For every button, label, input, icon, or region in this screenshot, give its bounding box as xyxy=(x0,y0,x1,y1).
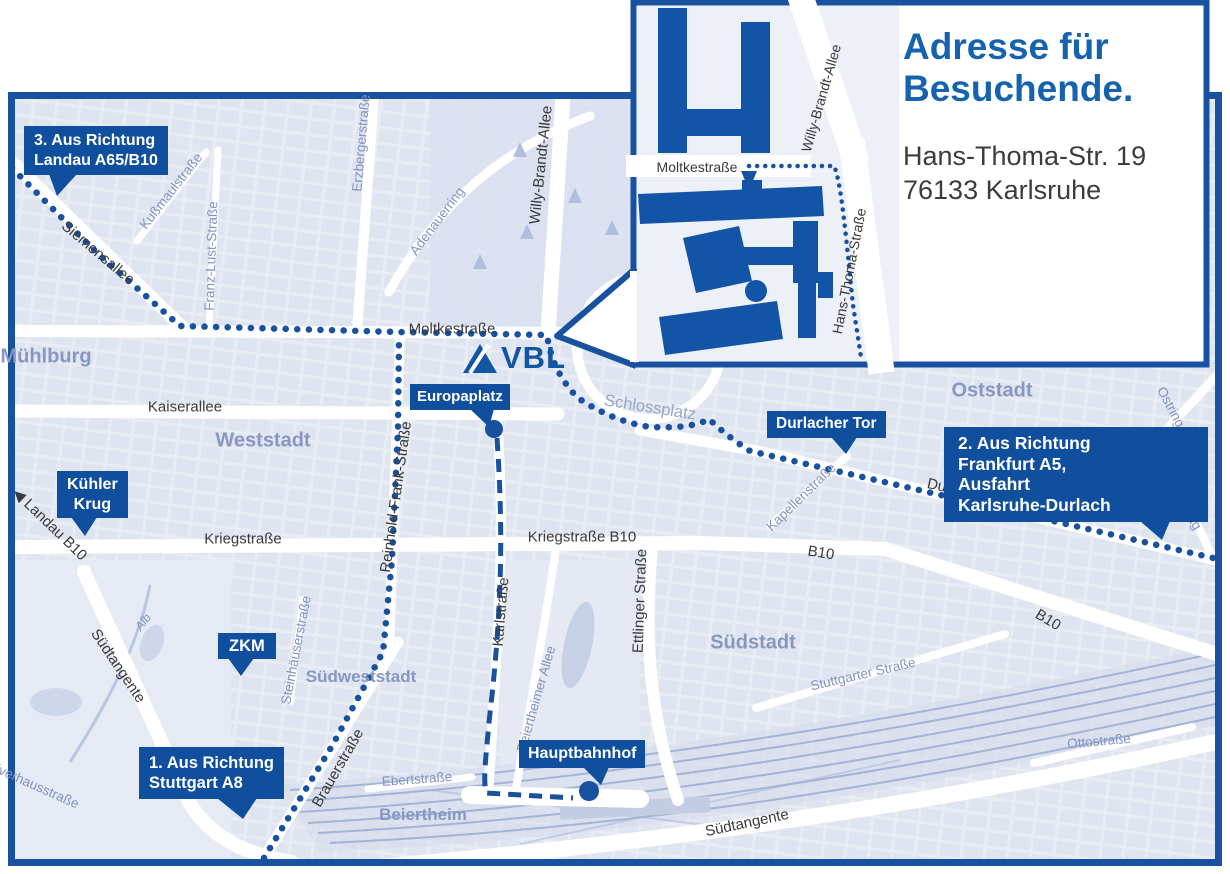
vbl-directions-map: SiemensalleeKußmaulstraßeFranz-Lust-Stra… xyxy=(0,0,1230,874)
callout-tail xyxy=(470,409,494,427)
callout-hauptbahnhof: Hauptbahnhof xyxy=(519,740,645,768)
callout-tail xyxy=(831,437,857,454)
vbl-logo-text: VBL xyxy=(501,340,566,376)
vbl-triangle-icon xyxy=(462,343,498,374)
callout-tail xyxy=(1140,521,1170,540)
callout-kuehler-krug: Kühler Krug xyxy=(57,471,128,518)
callout-tail xyxy=(217,798,257,819)
callout-tail xyxy=(46,174,80,196)
callout-zkm: ZKM xyxy=(218,633,276,659)
callout-europaplatz: Europaplatz xyxy=(410,384,510,410)
callout-durlacher-tor: Durlacher Tor xyxy=(767,411,886,438)
inset-address: Hans-Thoma-Str. 19 76133 Karlsruhe xyxy=(903,140,1146,208)
callout-route-frankfurt: 2. Aus Richtung Frankfurt A5, Ausfahrt K… xyxy=(944,427,1208,522)
callout-tail xyxy=(583,767,609,785)
callout-tail xyxy=(71,517,97,536)
callout-route-stuttgart: 1. Aus Richtung Stuttgart A8 xyxy=(139,747,284,799)
callout-route-landau: 3. Aus Richtung Landau A65/B10 xyxy=(24,126,168,175)
vbl-logo: VBL xyxy=(462,340,566,376)
pond xyxy=(30,688,82,716)
callout-tail xyxy=(228,658,254,676)
inset-title: Adresse für Besuchende. xyxy=(903,26,1133,110)
